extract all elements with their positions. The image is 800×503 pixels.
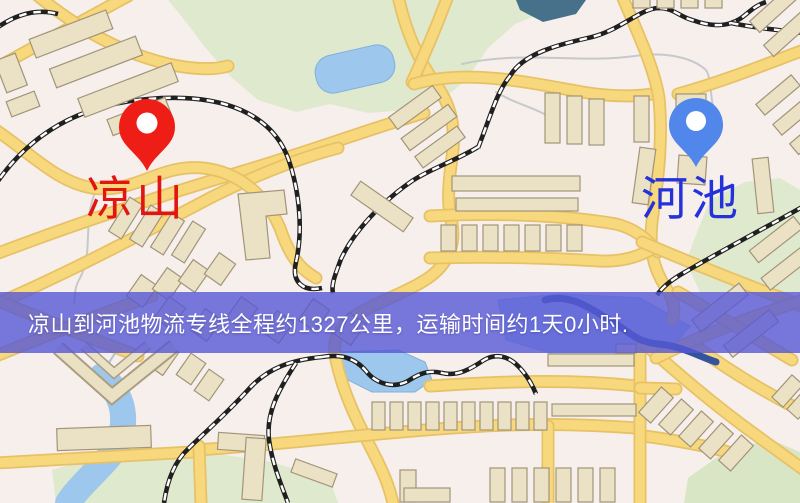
destination-pin-icon[interactable]: [669, 98, 723, 167]
map-canvas[interactable]: 凉山 河池 凉山到河池物流专线全程约1327公里，运输时间约1天0小时.: [0, 0, 800, 503]
map-base: [0, 0, 800, 503]
destination-label: 河池: [641, 176, 741, 224]
route-info-text: 凉山到河池物流专线全程约1327公里，运输时间约1天0小时.: [28, 307, 629, 339]
origin-label: 凉山: [86, 176, 186, 224]
route-info-banner: 凉山到河池物流专线全程约1327公里，运输时间约1天0小时.: [0, 292, 800, 353]
origin-pin-icon[interactable]: [119, 99, 175, 171]
